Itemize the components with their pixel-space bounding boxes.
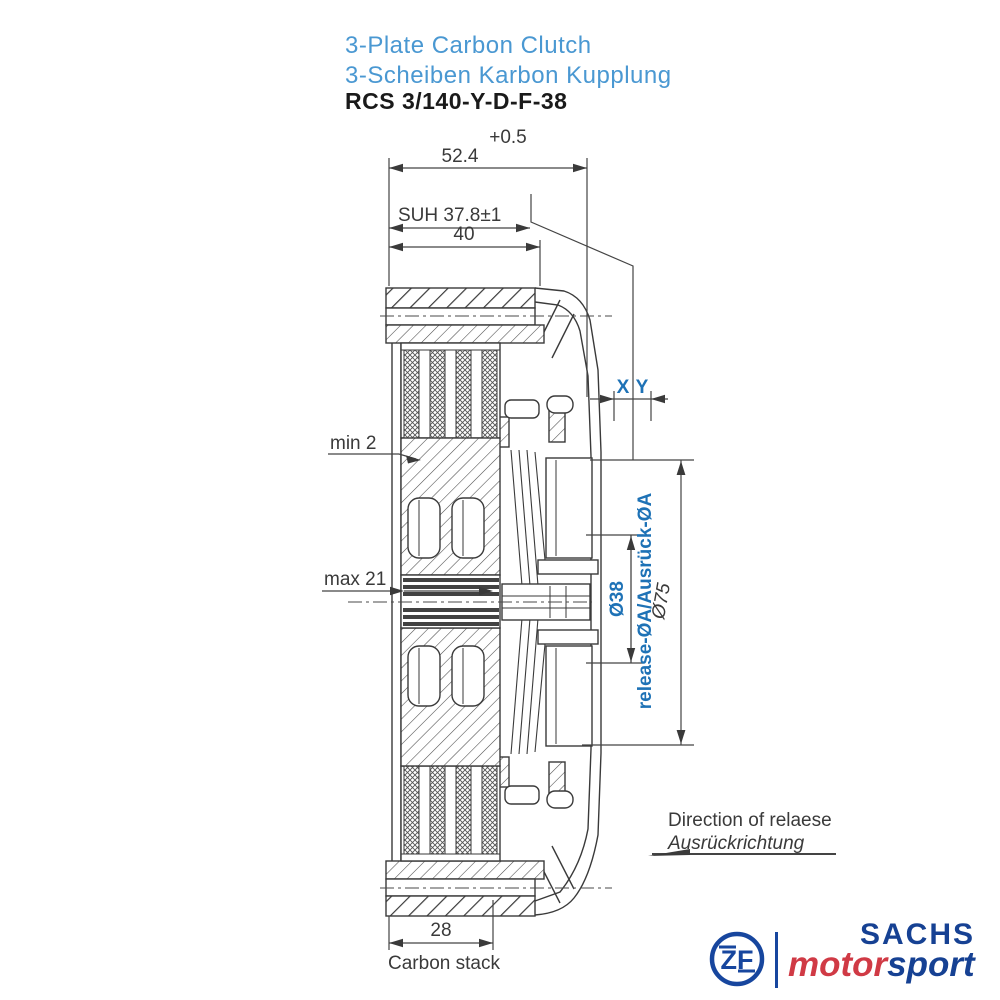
part-number: RCS 3/140-Y-D-F-38 <box>345 88 567 114</box>
title-english: 3-Plate Carbon Clutch <box>345 32 592 59</box>
label-carbon-stack: Carbon stack <box>388 953 500 974</box>
label-max-wear: max 21 <box>324 569 386 590</box>
motorsport-wordmark: motorsport <box>788 945 976 984</box>
clutch-drawing-page: 3-Plate Carbon Clutch 3-Scheiben Karbon … <box>0 0 1000 1000</box>
motorsport-motor: motor <box>788 945 890 984</box>
logo-divider <box>775 932 778 988</box>
label-min-wear: min 2 <box>330 433 376 454</box>
label-y-gap: Y <box>636 377 649 398</box>
dim-release-diameter: Ø38 <box>607 581 628 617</box>
zf-sachs-motorsport-logo: ZF SACHS motorsport <box>712 918 976 988</box>
dim-40: 40 <box>453 224 474 245</box>
dim-suh: SUH 37.8±1 <box>398 205 501 226</box>
label-x-gap: X <box>617 377 630 398</box>
dim-overall-width-tolerance: +0.5 <box>489 127 527 148</box>
motorsport-sport: sport <box>887 945 976 984</box>
direction-of-release: Direction of relaese Ausrückrichtung <box>648 810 836 856</box>
direction-label-en: Direction of relaese <box>668 810 832 831</box>
clutch-technical-drawing: 3-Plate Carbon Clutch 3-Scheiben Karbon … <box>0 0 1000 1000</box>
title-german: 3-Scheiben Karbon Kupplung <box>345 62 672 89</box>
dim-carbon-stack-width: 28 <box>430 920 451 941</box>
dim-overall-width: 52.4 <box>442 146 479 167</box>
